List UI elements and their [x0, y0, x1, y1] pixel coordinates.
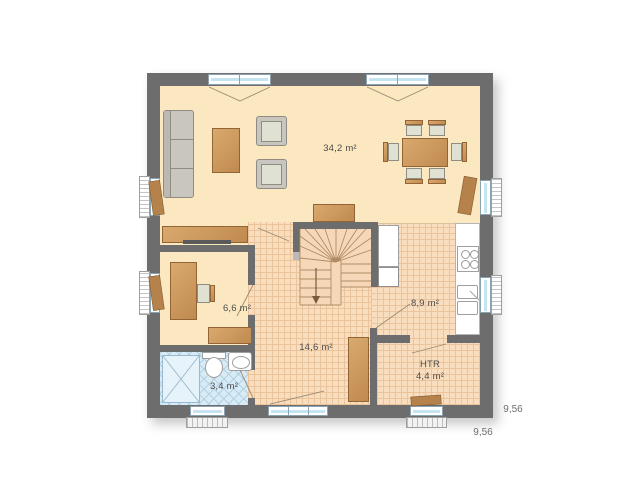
- kitchen-fridge: [378, 267, 399, 287]
- window-glass: [413, 410, 440, 413]
- label-utility-area: 4,4 m²: [408, 371, 452, 382]
- door-glass: [484, 183, 487, 213]
- toilet-icon: [205, 357, 223, 378]
- shutter-box-dining: [491, 178, 502, 217]
- armchair-seat: [261, 121, 282, 142]
- tv-icon: [183, 240, 231, 244]
- kitchen-sink-basin-1: [457, 285, 478, 299]
- room-utility-floor: [377, 335, 480, 405]
- door-glass: [271, 410, 325, 413]
- dining-chair: [428, 168, 446, 184]
- window-mullion: [397, 75, 398, 85]
- window-right-kitchen: [480, 277, 491, 313]
- chair-back: [210, 285, 215, 302]
- wall-kitchen-utility-right: [447, 335, 480, 343]
- wall-exterior-top: [147, 73, 493, 86]
- chair-seat: [429, 168, 445, 179]
- window-glass: [154, 276, 157, 311]
- sofa-backrest: [164, 111, 171, 197]
- label-living-dining-area: 34,2 m²: [310, 143, 370, 154]
- exterior-steps-bathroom: [186, 417, 228, 428]
- burner: [461, 250, 470, 259]
- dining-table: [402, 138, 448, 167]
- entrance-door: [268, 406, 328, 416]
- wall-exterior-left: [147, 73, 160, 418]
- sink-basin: [232, 356, 250, 369]
- dining-chair: [451, 142, 467, 162]
- door-mullion: [288, 407, 289, 416]
- staircase-floor: [300, 229, 371, 287]
- sideboard: [313, 204, 355, 222]
- sofa-cushion-line: [170, 168, 193, 169]
- label-utility-name: HTR: [408, 359, 452, 370]
- shutter-box-office: [139, 271, 150, 315]
- wall-exterior-right: [480, 73, 493, 418]
- wall-stairs-left-post: [293, 252, 300, 260]
- wall-office-living: [160, 245, 255, 252]
- shutter-box-living: [139, 176, 150, 218]
- burner: [470, 250, 479, 259]
- hall-wardrobe: [348, 337, 369, 402]
- desk: [170, 262, 197, 320]
- chair-seat: [388, 143, 399, 161]
- dimension-bottom: 9,56: [467, 427, 499, 438]
- chair-seat: [451, 143, 462, 161]
- desk-chair: [197, 284, 215, 303]
- chair-seat: [429, 125, 445, 136]
- wall-office-bathroom: [160, 345, 255, 352]
- wall-hall-utility: [370, 328, 377, 405]
- window-glass: [154, 181, 157, 214]
- label-kitchen-area: 8,9 m²: [400, 298, 450, 309]
- dimension-right: 9,56: [497, 404, 529, 415]
- chair-seat: [197, 284, 210, 303]
- dining-chair: [405, 168, 423, 184]
- wall-stairs-left-stub: [293, 222, 300, 252]
- coffee-table: [212, 128, 240, 173]
- window-utility: [410, 406, 443, 416]
- window-bathroom: [190, 406, 225, 416]
- door-mullion: [308, 407, 309, 416]
- sofa-cushion-line: [170, 139, 193, 140]
- sofa: [163, 110, 194, 198]
- label-bathroom-area: 3,4 m²: [202, 381, 246, 392]
- window-glass: [484, 280, 487, 311]
- chair-back: [405, 179, 423, 184]
- kitchen-sink-basin-2: [457, 301, 478, 315]
- door-terrace-dining: [480, 180, 491, 215]
- wall-stairs-right: [371, 229, 378, 287]
- burner: [470, 260, 479, 269]
- armchair: [256, 159, 287, 189]
- kitchen-tall-cabinet: [378, 225, 399, 267]
- label-hallway-area: 14,6 m²: [288, 342, 344, 353]
- shower-icon: [162, 355, 200, 403]
- stove-icon: [457, 246, 479, 272]
- armchair-seat: [261, 164, 282, 185]
- dining-chair: [428, 120, 446, 136]
- dining-chair: [383, 142, 399, 162]
- chair-back: [428, 179, 446, 184]
- wall-office-right-upper: [248, 245, 255, 285]
- chair-back: [462, 142, 467, 162]
- exterior-steps-utility: [406, 417, 447, 428]
- sink-icon: [228, 352, 252, 371]
- window-top-right: [366, 74, 429, 85]
- window-mullion: [239, 75, 240, 85]
- wall-bathroom-right-stub: [248, 398, 255, 405]
- shutter-box-kitchen: [491, 275, 502, 315]
- armchair: [256, 116, 287, 146]
- wall-kitchen-utility-left: [377, 335, 410, 343]
- label-office-area: 6,6 m²: [212, 303, 262, 314]
- window-left-living: [150, 178, 160, 216]
- floorplan-canvas: 34,2 m² 6,6 m² 14,6 m² 8,9 m² 3,4 m² HTR…: [0, 0, 640, 480]
- office-sideboard: [208, 327, 252, 344]
- window-top-left: [208, 74, 271, 85]
- chair-seat: [406, 168, 422, 179]
- kitchen-counter: [455, 223, 480, 335]
- chair-seat: [406, 125, 422, 136]
- dining-chair: [405, 120, 423, 136]
- window-left-office: [150, 273, 160, 313]
- window-glass: [193, 410, 222, 413]
- wall-stairs-top: [293, 222, 378, 229]
- burner: [461, 260, 470, 269]
- staircase-floor-lower: [300, 287, 341, 305]
